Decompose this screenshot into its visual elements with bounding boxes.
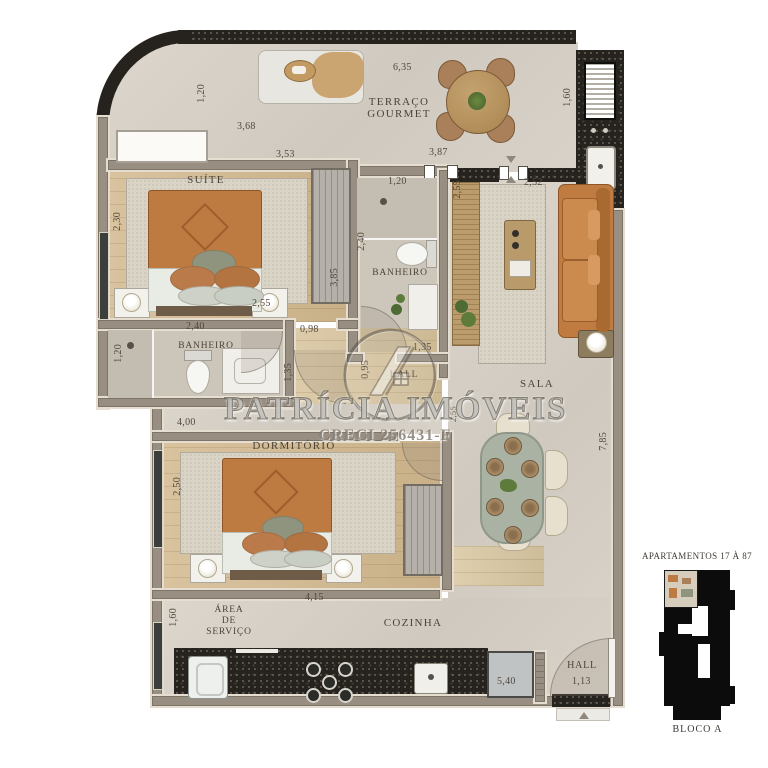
room-label-banheiro2: BANHEIRO: [364, 268, 436, 278]
keyplan-cutout: [692, 606, 708, 636]
coffee-table-item: [512, 242, 519, 249]
cooktop-burner: [322, 675, 337, 690]
suite-window: [99, 232, 109, 320]
watermark-brand: PATRÍCIA IMÓVEIS: [224, 391, 554, 428]
room-label-cozinha: COZINHA: [380, 617, 446, 629]
room-label-area-servico: ÁREA DE SERVIÇO: [198, 605, 260, 638]
room-label-suite: SUÍTE: [176, 174, 236, 186]
keyplan-building-tab: [730, 686, 735, 704]
dim-label: 2,55: [452, 180, 463, 199]
door-marker: [506, 156, 516, 163]
dim-label: 6,35: [393, 62, 412, 73]
fridge: [487, 651, 534, 698]
cooktop-burner: [338, 688, 353, 703]
terraco-sink-drain: [598, 164, 603, 169]
suite-lamp: [122, 293, 141, 312]
coffee-table-item: [512, 230, 519, 237]
daybed-tray-plate: [292, 66, 306, 74]
plate: [504, 526, 522, 544]
keyplan-title: APARTAMENTOS 17 À 87: [626, 551, 768, 561]
keyplan-unit-detail: [668, 575, 678, 582]
watermark-creci: CRECI 256431-F: [300, 427, 470, 445]
entry-door-leaf: [608, 638, 616, 698]
terraco-line1: TERRAÇO: [369, 96, 429, 108]
dim-label: 3,85: [329, 268, 340, 287]
keyplan-cutout: [664, 706, 673, 720]
cooktop-burner: [306, 688, 321, 703]
dining-chair: [545, 450, 568, 490]
table-greenery: [500, 479, 517, 492]
dim-label: 4,00: [177, 417, 196, 428]
vanity2-plant: [396, 294, 405, 303]
suite-bed-bench: [156, 306, 252, 316]
dim-label: 4,15: [305, 592, 324, 603]
vanity2-plant: [391, 304, 402, 315]
shelf-item: [236, 649, 278, 653]
dorm-lamp: [334, 559, 353, 578]
dim-label: 1,20: [113, 344, 124, 363]
keyplan-cutout: [698, 644, 710, 678]
table-plant: [468, 92, 486, 110]
keyplan-cutout: [678, 624, 694, 634]
hall-cabinet-wall: [533, 650, 547, 704]
terraco-line2: GOURMET: [367, 108, 431, 120]
keyplan-unit-detail: [681, 589, 693, 597]
kitchen-faucet: [428, 674, 434, 680]
dim-label: 2,55: [252, 298, 271, 309]
dim-label: 3,87: [429, 147, 448, 158]
dim-label: 1,35: [283, 363, 294, 382]
tv-plant: [455, 300, 468, 313]
grill-knob: [591, 128, 596, 133]
grill-knob: [603, 128, 608, 133]
area-line1: ÁREA: [214, 605, 243, 615]
side-table-lamp: [586, 332, 607, 353]
shower-area: [108, 330, 154, 398]
sofa-pillow: [588, 255, 600, 285]
pillow: [284, 550, 332, 568]
room-label-terraco: TERRAÇO GOURMET: [356, 96, 442, 120]
area-line2: DE: [222, 616, 236, 626]
servico-window: [153, 622, 163, 690]
daybed-blanket: [312, 52, 364, 98]
keyplan-building-tab: [730, 590, 735, 610]
door-marker: [506, 176, 516, 183]
keyplan-cutout: [721, 706, 730, 720]
dim-label: 2,40: [356, 232, 367, 251]
dining-wood-inlay: [452, 546, 544, 586]
toilet2-bowl: [396, 242, 428, 266]
plate: [486, 458, 504, 476]
dormitorio-window: [153, 450, 163, 548]
dim-label: 1,13: [572, 676, 591, 687]
dim-label: 7,85: [598, 432, 609, 451]
washing-machine-door: [196, 663, 224, 696]
dim-label: 5,40: [497, 676, 516, 687]
dim-label: 1,60: [562, 88, 573, 107]
plate: [486, 498, 504, 516]
shower2-area: [357, 178, 437, 240]
dim-label: 1,20: [388, 176, 407, 187]
keyplan-unit-detail: [669, 588, 677, 598]
dim-label: 2,50: [172, 477, 183, 496]
door-jamb: [424, 165, 435, 179]
curved-corner-wall: [96, 30, 192, 128]
top-wall: [178, 30, 576, 44]
room-label-banheiro-suite: BANHEIRO: [170, 341, 242, 351]
room-label-hall-entry: HALL: [562, 660, 602, 671]
keyplan-building-tab: [659, 632, 664, 656]
sofa-pillow: [588, 210, 600, 240]
dorm-bed-bench: [230, 570, 322, 580]
door-jamb: [447, 165, 458, 179]
dim-label: 3,68: [237, 121, 256, 132]
shower2-head: [380, 198, 387, 205]
grill: [584, 62, 616, 120]
cooktop-burner: [306, 662, 321, 677]
vanity2: [408, 284, 438, 330]
dim-label: 0,98: [300, 324, 319, 335]
ac-ledge-box: [116, 130, 208, 163]
coffee-table: [504, 220, 536, 290]
room-label-sala: SALA: [512, 378, 562, 390]
dim-label: 2,40: [186, 321, 205, 332]
dim-label: 2,30: [112, 212, 123, 231]
keyplan-bloco: BLOCO A: [650, 724, 745, 735]
dorm-wardrobe: [403, 484, 443, 576]
floorplan-canvas: TERRAÇO GOURMET SUÍTE BANHEIRO BANHEIRO …: [0, 0, 768, 768]
dormitorio-bottom-wall: [150, 588, 442, 601]
plate: [521, 499, 539, 517]
keyplan-unit-detail: [682, 578, 691, 584]
keyplan-unit-highlight: [664, 570, 698, 608]
dim-label: 3,53: [276, 149, 295, 160]
cooktop-burner: [338, 662, 353, 677]
plate: [504, 437, 522, 455]
dim-label: 1,20: [196, 84, 207, 103]
dorm-lamp: [198, 559, 217, 578]
dim-label: 2,52: [524, 177, 543, 188]
area-line3: SERVIÇO: [206, 627, 251, 637]
dining-chair: [545, 496, 568, 536]
entry-marker: [579, 712, 589, 719]
tv-plant: [461, 312, 476, 327]
dim-label: 1,60: [168, 608, 179, 627]
coffee-table-pad: [509, 260, 531, 277]
plate: [521, 460, 539, 478]
shower-head: [127, 342, 134, 349]
